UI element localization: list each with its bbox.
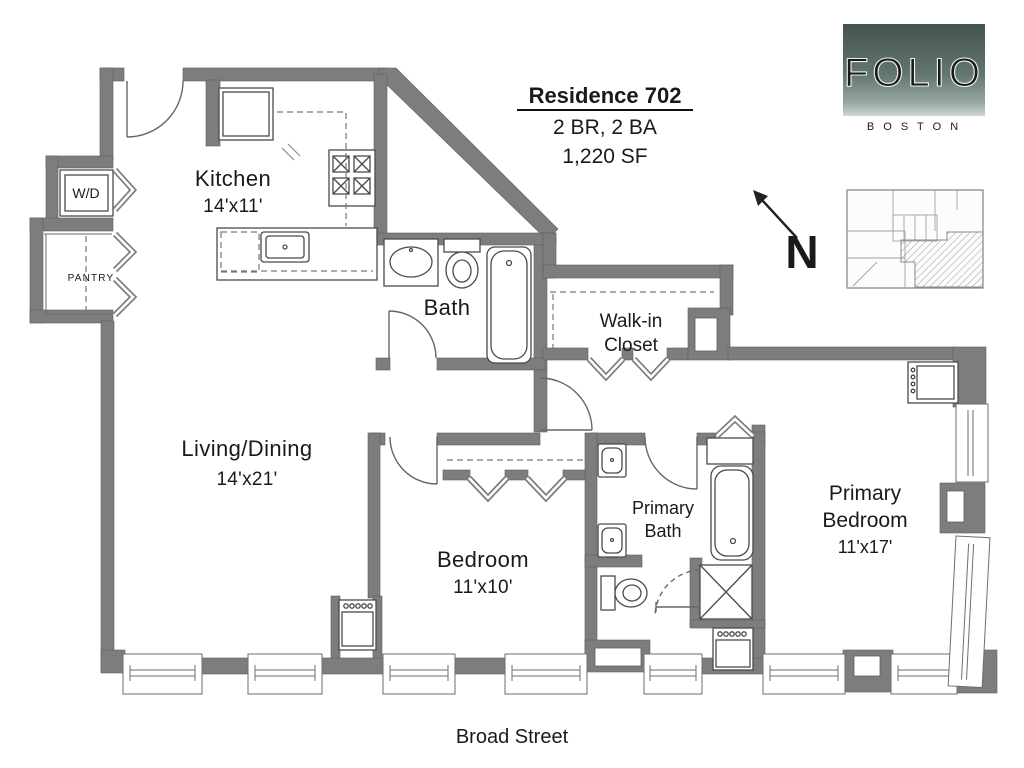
range xyxy=(329,150,375,206)
window xyxy=(891,654,957,694)
wd-label: W/D xyxy=(72,185,99,201)
primary-bedroom-label-1: Primary xyxy=(829,482,902,505)
title-block: Residence 702 2 BR, 2 BA 1,220 SF xyxy=(517,83,693,168)
shower xyxy=(700,565,752,619)
kitchen-label: Kitchen xyxy=(195,166,271,191)
window xyxy=(644,654,702,694)
bedroom-dims: 11'x10' xyxy=(453,577,513,598)
window xyxy=(505,654,587,694)
street-label: Broad Street xyxy=(456,726,569,748)
logo-brand-text: FOLIO xyxy=(844,51,984,95)
linen-closet xyxy=(707,438,753,464)
window xyxy=(248,654,322,694)
kitchen-dims: 14'x11' xyxy=(203,196,263,217)
toilet xyxy=(444,239,480,288)
primary-sink xyxy=(598,444,626,477)
window-right-upper xyxy=(956,404,988,482)
bath-vanity xyxy=(384,239,438,286)
walk-in-closet-label-2: Closet xyxy=(604,335,659,356)
window xyxy=(123,654,202,694)
room-labels: Kitchen 14'x11' Living/Dining 14'x21' Ba… xyxy=(68,166,908,598)
north-arrow: N xyxy=(753,190,819,278)
living-dining-dims: 14'x21' xyxy=(216,469,277,490)
cabinet-door-ticks xyxy=(282,144,300,160)
refrigerator xyxy=(219,88,273,140)
primary-bath-label-2: Bath xyxy=(644,521,681,541)
built-in-cabinet xyxy=(908,362,958,403)
bedroom-door xyxy=(390,437,437,484)
primary-bath-door xyxy=(645,437,697,489)
logo-city-text: B O S T O N xyxy=(867,121,961,133)
hvac-unit xyxy=(339,600,376,650)
pantry-label: PANTRY xyxy=(68,273,115,284)
brand-logo: FOLIO B O S T O N xyxy=(843,24,985,133)
primary-bathtub xyxy=(711,466,753,560)
floorplan-svg: Kitchen 14'x11' Living/Dining 14'x21' Ba… xyxy=(0,0,1024,768)
bathtub xyxy=(487,247,531,363)
walk-in-closet-label-1: Walk-in xyxy=(600,311,663,332)
entry-door xyxy=(127,81,183,137)
floorplan-page: Kitchen 14'x11' Living/Dining 14'x21' Ba… xyxy=(0,0,1024,768)
primary-bath-label-1: Primary xyxy=(632,498,694,518)
key-plan xyxy=(847,190,983,288)
north-label: N xyxy=(785,226,818,278)
primary-bedroom-label-2: Bedroom xyxy=(822,509,907,532)
kitchen-sink xyxy=(261,232,309,262)
residence-area: 1,220 SF xyxy=(562,145,647,168)
walls xyxy=(30,68,997,693)
hall-door xyxy=(540,378,592,430)
bath-label: Bath xyxy=(424,295,471,320)
residence-specs: 2 BR, 2 BA xyxy=(553,116,657,139)
living-dining-label: Living/Dining xyxy=(181,436,312,461)
bedroom-label: Bedroom xyxy=(437,547,529,572)
window xyxy=(763,654,845,694)
primary-bedroom-dims: 11'x17' xyxy=(838,537,893,557)
primary-sink xyxy=(598,524,626,557)
primary-toilet xyxy=(601,576,647,610)
window xyxy=(383,654,455,694)
residence-title: Residence 702 xyxy=(529,83,682,108)
window-right-lower xyxy=(948,536,990,688)
hvac-unit xyxy=(713,628,753,670)
